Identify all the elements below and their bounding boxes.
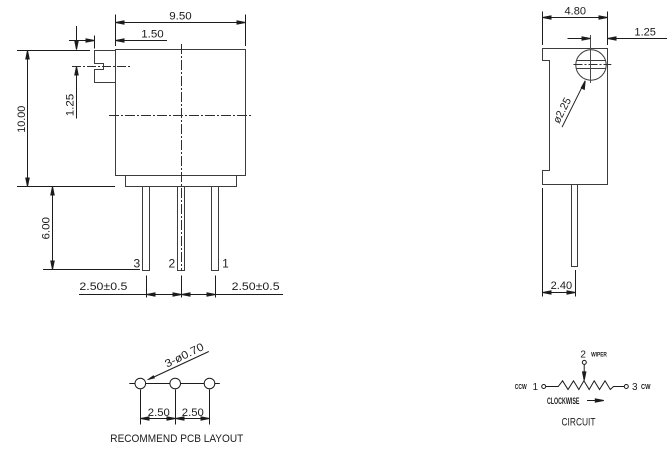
svg-text:RECOMMEND PCB LAYOUT: RECOMMEND PCB LAYOUT bbox=[110, 433, 243, 445]
svg-text:6.00: 6.00 bbox=[40, 217, 52, 240]
svg-text:2.50±0.5: 2.50±0.5 bbox=[232, 281, 280, 293]
svg-text:CIRCUIT: CIRCUIT bbox=[562, 416, 596, 428]
svg-text:CW: CW bbox=[641, 384, 651, 391]
svg-text:2.50: 2.50 bbox=[182, 407, 204, 419]
svg-text:1.25: 1.25 bbox=[634, 27, 656, 39]
svg-text:1.25: 1.25 bbox=[64, 94, 76, 117]
svg-text:2: 2 bbox=[168, 256, 175, 270]
svg-text:WIPER: WIPER bbox=[591, 351, 607, 358]
svg-text:CLOCKWISE: CLOCKWISE bbox=[547, 396, 580, 406]
svg-text:2.50: 2.50 bbox=[148, 407, 170, 419]
svg-text:1: 1 bbox=[222, 256, 229, 270]
svg-text:10.00: 10.00 bbox=[16, 106, 28, 133]
svg-text:2: 2 bbox=[580, 350, 586, 361]
svg-text:CCW: CCW bbox=[515, 384, 527, 391]
svg-text:4.80: 4.80 bbox=[565, 6, 587, 18]
svg-text:3: 3 bbox=[134, 256, 141, 270]
svg-text:9.50: 9.50 bbox=[169, 10, 192, 22]
svg-text:1: 1 bbox=[533, 382, 539, 393]
svg-text:2.50±0.5: 2.50±0.5 bbox=[79, 281, 127, 293]
svg-text:3: 3 bbox=[632, 382, 638, 393]
svg-text:2.40: 2.40 bbox=[551, 280, 573, 292]
svg-text:1.50: 1.50 bbox=[141, 28, 164, 40]
